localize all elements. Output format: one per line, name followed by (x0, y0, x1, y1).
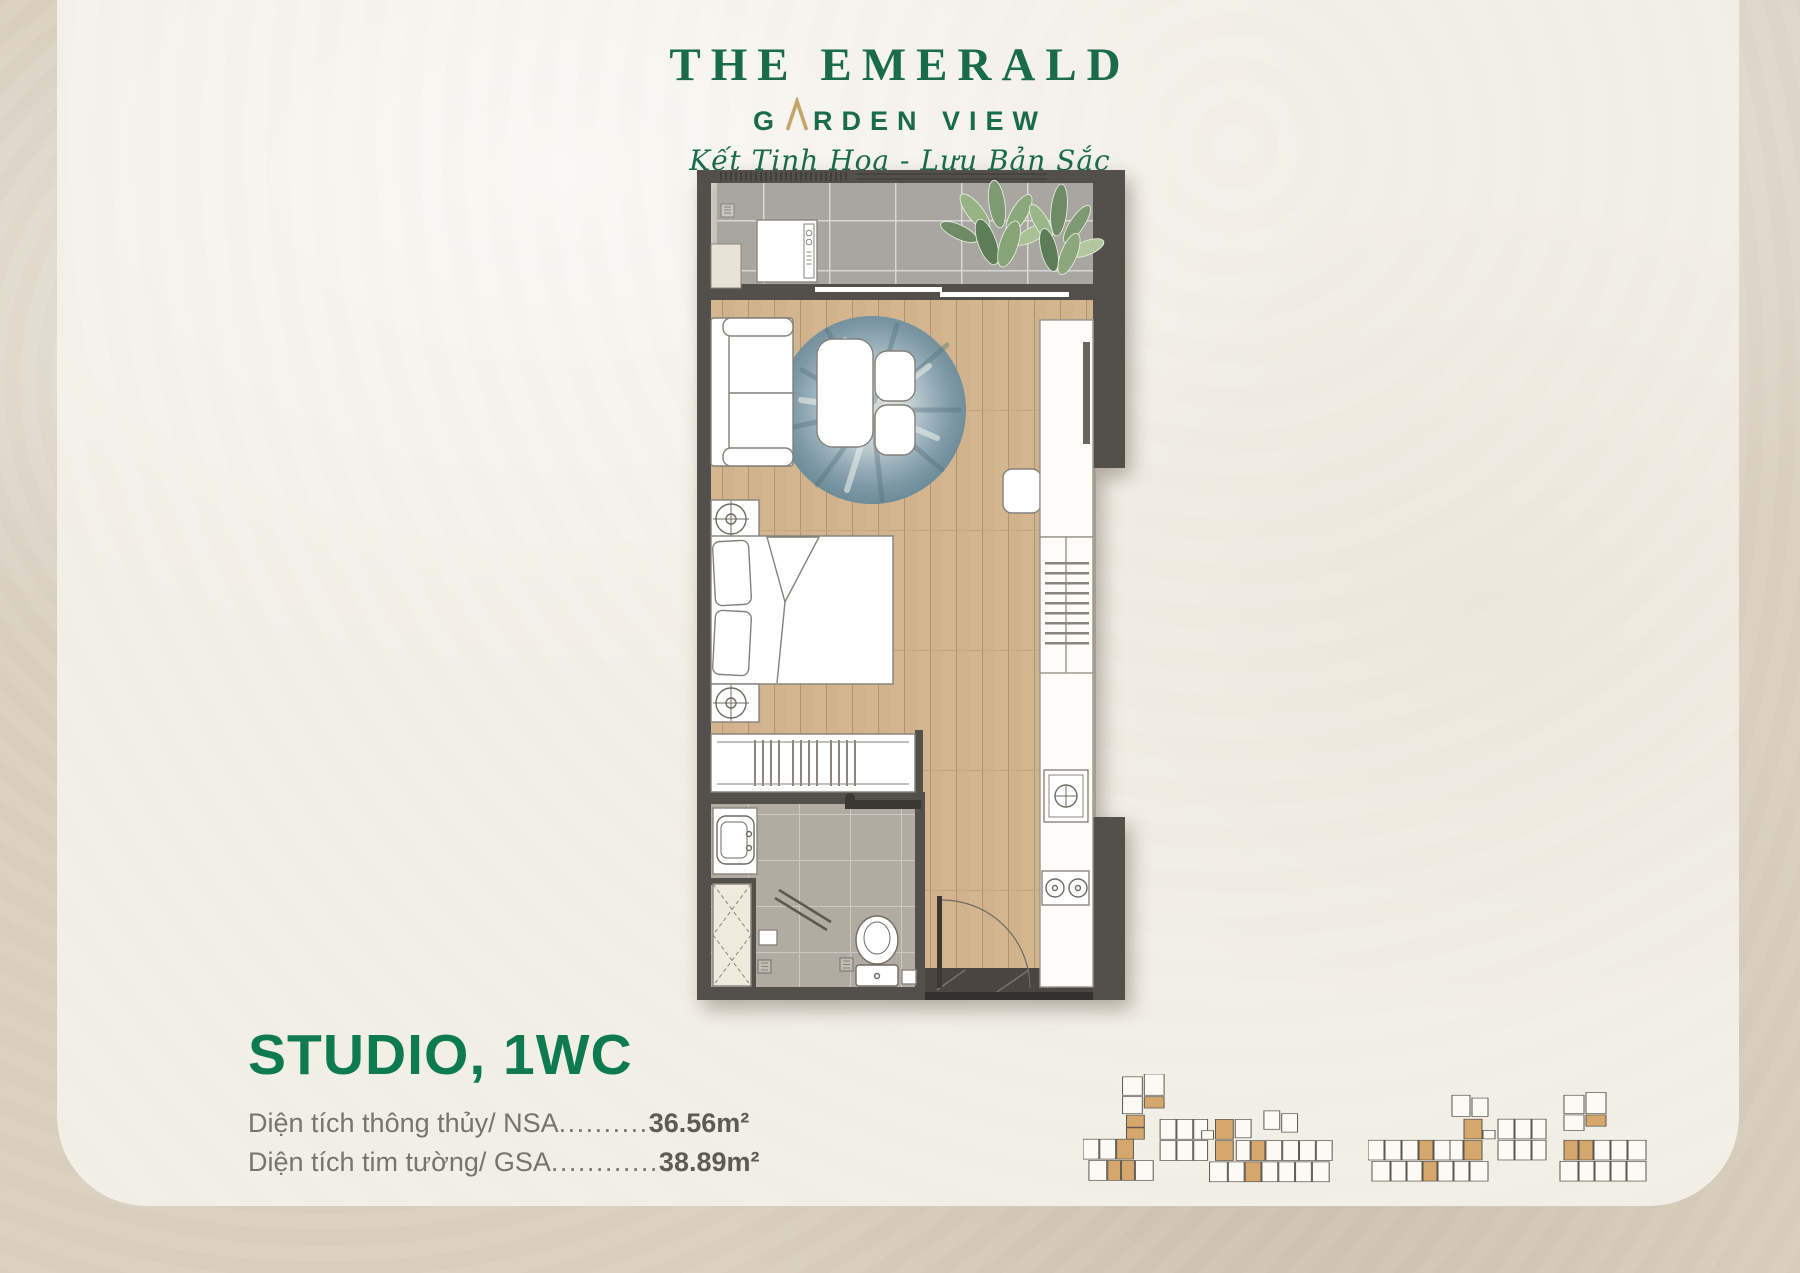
nightstand-lamp (711, 684, 759, 722)
floor-plan (697, 170, 1125, 1000)
key-plan-unit-highlighted (1144, 1097, 1164, 1108)
kitchen-sink (1044, 770, 1088, 822)
shower-shelf (759, 930, 777, 945)
chair (875, 405, 915, 455)
key-plan-unit (1454, 1161, 1469, 1181)
key-plan-unit (1532, 1119, 1546, 1139)
nightstand-lamp (711, 500, 759, 538)
key-plan-unit (1282, 1114, 1298, 1132)
key-plan-unit-highlighted (1419, 1140, 1433, 1160)
key-plan-unit (1368, 1140, 1384, 1160)
key-plan-unit (1202, 1131, 1214, 1140)
key-plan-tower-2 (1368, 1084, 1668, 1186)
key-plan-unit-highlighted (1251, 1141, 1265, 1161)
area-nsa-label: Diện tích thông thủy/ NSA (248, 1108, 559, 1138)
key-plan-unit (1452, 1095, 1470, 1116)
double-bed (711, 536, 893, 684)
key-plan-unit (1194, 1141, 1208, 1161)
washing-machine (757, 220, 817, 282)
key-plan-unit (1228, 1162, 1244, 1182)
key-plan-tower-1 (1083, 1074, 1345, 1186)
key-plan-unit (1611, 1161, 1626, 1181)
key-plan-unit (1594, 1140, 1610, 1160)
key-plan-unit (1144, 1074, 1164, 1095)
unit-title: STUDIO, 1WC (248, 1022, 633, 1088)
key-plan-unit (1470, 1161, 1488, 1181)
key-plan-unit (1177, 1141, 1193, 1161)
sofa (711, 318, 793, 466)
key-plan-unit (1300, 1141, 1316, 1161)
key-plan-unit (1434, 1140, 1450, 1160)
coffee-table (817, 339, 873, 447)
key-plan-unit-highlighted (1464, 1140, 1482, 1160)
key-plan-unit-highlighted (1215, 1119, 1233, 1139)
stove (1042, 871, 1089, 905)
key-plan-unit (1235, 1119, 1251, 1137)
key-plan-unit (1123, 1097, 1143, 1114)
key-plan-unit (1266, 1141, 1282, 1161)
key-plan-unit (1564, 1115, 1584, 1130)
key-plan-unit-highlighted (1108, 1160, 1121, 1180)
triangle-a-icon (785, 97, 809, 138)
stool (1003, 469, 1041, 513)
area-gsa-dots: ............ (551, 1147, 659, 1177)
key-plan-unit (1498, 1140, 1514, 1160)
key-plan-unit (1515, 1140, 1531, 1160)
area-line-gsa: Diện tích tim tường/ GSA............38.8… (248, 1143, 760, 1182)
key-plan-unit-highlighted (1215, 1141, 1233, 1161)
key-plan-unit (1210, 1162, 1228, 1182)
key-plan-unit (1296, 1162, 1312, 1182)
shelf-unit (1040, 537, 1093, 673)
key-plan-unit (1316, 1141, 1332, 1161)
kitchen-counter (1040, 320, 1093, 987)
key-plan-unit (1611, 1140, 1627, 1160)
key-plan-unit (1312, 1162, 1329, 1182)
brochure-page: THE EMERALD GRDEN VIEW Kết Tinh Hoa - Lư… (0, 0, 1800, 1273)
key-plan-unit (1560, 1161, 1578, 1181)
key-plan-unit (1391, 1161, 1406, 1181)
brand-logo: THE EMERALD GRDEN VIEW Kết Tinh Hoa - Lư… (0, 38, 1800, 177)
key-plan-unit-highlighted (1579, 1140, 1593, 1160)
key-plan-unit (1515, 1119, 1531, 1139)
key-plan-unit (1595, 1161, 1610, 1181)
bathroom-sink (717, 816, 754, 864)
key-plan-unit-highlighted (1464, 1119, 1482, 1139)
key-plan-unit-highlighted (1122, 1160, 1135, 1180)
brand-subtitle-rest: RDEN VIEW (813, 106, 1047, 137)
key-plan-unit (1402, 1140, 1418, 1160)
key-plan-unit (1628, 1140, 1646, 1160)
area-table: Diện tích thông thủy/ NSA..........36.56… (248, 1104, 760, 1182)
key-plan-unit (1100, 1139, 1116, 1159)
chair (875, 351, 915, 401)
sliding-door (815, 287, 942, 292)
key-plan-unit (1450, 1140, 1463, 1160)
key-plan-unit (1472, 1098, 1488, 1116)
key-plan-unit (1564, 1095, 1584, 1113)
key-plan-unit-highlighted (1586, 1115, 1606, 1126)
wardrobe (711, 734, 915, 792)
key-plan-unit (1627, 1161, 1646, 1181)
key-plan-unit (1123, 1077, 1143, 1095)
key-plan-unit (1532, 1140, 1546, 1160)
key-plan-unit (1438, 1161, 1453, 1181)
key-plan-unit (1083, 1139, 1099, 1159)
key-plan-unit (1089, 1160, 1107, 1180)
key-plan-unit-highlighted (1564, 1140, 1578, 1160)
brand-title: THE EMERALD (0, 38, 1800, 92)
key-plan-unit (1498, 1119, 1514, 1139)
key-plan-unit-highlighted (1127, 1128, 1145, 1139)
linen-closet (713, 884, 751, 986)
key-plan-unit (1586, 1092, 1606, 1113)
brand-subtitle: GRDEN VIEW (0, 97, 1800, 137)
key-plan-unit (1264, 1111, 1280, 1129)
key-plan-unit (1579, 1161, 1594, 1181)
key-plan-unit (1407, 1161, 1422, 1181)
area-gsa-value: 38.89m² (659, 1147, 760, 1177)
key-plan-unit (1372, 1161, 1390, 1181)
key-plan-unit (1160, 1119, 1176, 1139)
area-nsa-dots: .......... (559, 1108, 649, 1138)
key-plan-unit (1279, 1162, 1295, 1182)
key-plan-unit-highlighted (1117, 1139, 1134, 1159)
key-plan-unit (1160, 1141, 1176, 1161)
area-line-nsa: Diện tích thông thủy/ NSA..........36.56… (248, 1104, 760, 1143)
key-plan-unit (1135, 1160, 1153, 1180)
key-plan-unit-highlighted (1245, 1162, 1261, 1182)
area-nsa-value: 36.56m² (649, 1108, 750, 1138)
ac-ledge (711, 244, 741, 288)
area-gsa-label: Diện tích tim tường/ GSA (248, 1147, 551, 1177)
tv (1083, 342, 1090, 444)
key-plan-unit (1283, 1141, 1299, 1161)
key-plan-unit (1483, 1130, 1495, 1138)
key-plan-unit (1385, 1140, 1401, 1160)
tv-cabinet (1040, 320, 1093, 537)
key-plan-unit-highlighted (1423, 1161, 1437, 1181)
key-plan-unit-highlighted (1127, 1115, 1145, 1127)
key-plan-unit (1262, 1162, 1278, 1182)
key-plan-unit (1236, 1141, 1250, 1161)
brand-subtitle-g: G (753, 106, 783, 137)
key-plan-unit (1177, 1119, 1193, 1139)
